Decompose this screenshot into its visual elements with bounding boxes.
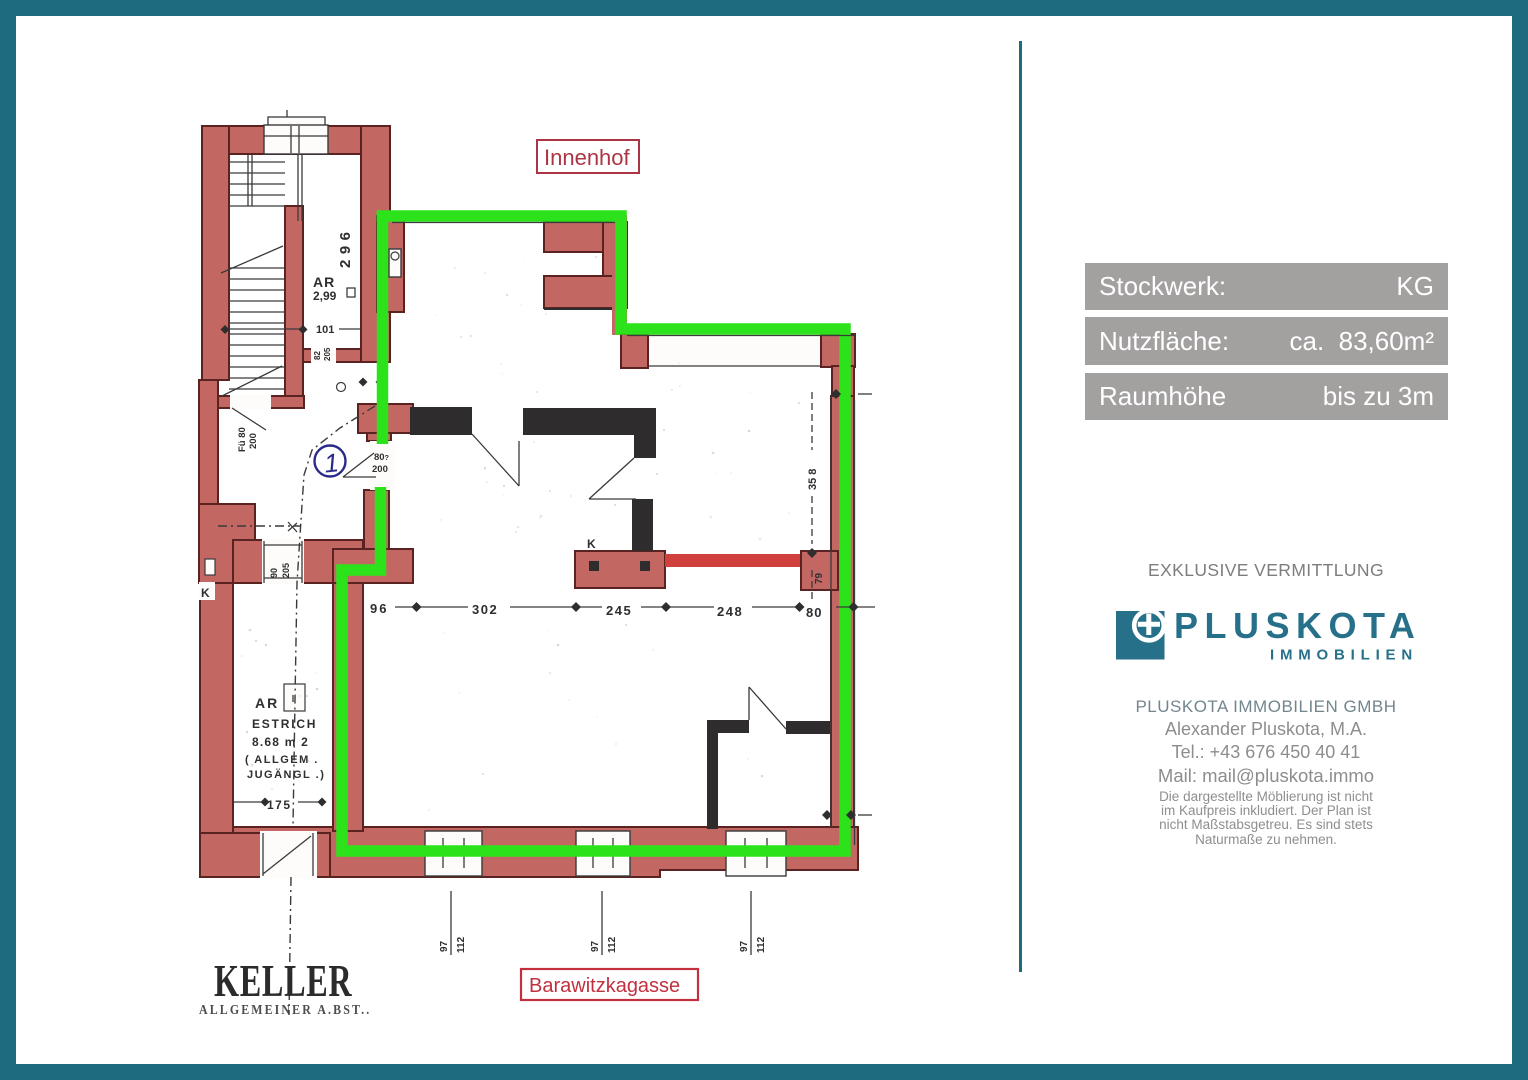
svg-text:35 8: 35 8 [807,469,819,490]
svg-text:ESTRICH: ESTRICH [252,717,317,731]
svg-text:8.68 m 2: 8.68 m 2 [252,735,309,749]
svg-text:Barawitzkagasse: Barawitzkagasse [529,975,680,997]
svg-text:Innenhof: Innenhof [544,145,631,170]
svg-text:JUGÄNGL .): JUGÄNGL .) [247,768,325,781]
svg-text:296: 296 [337,226,354,268]
svg-text:IMMOBILIEN: IMMOBILIEN [1270,647,1418,664]
svg-text:112: 112 [607,936,618,953]
svg-text:Fü 80: Fü 80 [237,427,248,452]
svg-text:205: 205 [281,563,291,578]
svg-text:AR: AR [255,695,279,711]
svg-text:ALLGEMEINER A.BST..: ALLGEMEINER A.BST.. [199,1001,371,1017]
svg-text:245: 245 [606,603,632,618]
svg-text:PLUSKOTA: PLUSKOTA [1174,605,1421,646]
svg-text:K: K [201,586,210,600]
svg-text:205: 205 [323,347,332,361]
svg-text:200: 200 [372,464,388,475]
svg-text:112: 112 [756,936,767,953]
svg-text:K: K [587,537,596,551]
svg-text:96: 96 [370,601,388,616]
svg-text:1: 1 [323,447,341,478]
svg-text:KELLER: KELLER [214,955,353,1006]
svg-text:112: 112 [456,936,467,953]
svg-text:97: 97 [739,940,750,952]
svg-text:2,99: 2,99 [313,289,337,303]
svg-text:175: 175 [267,798,292,812]
svg-text:80: 80 [806,605,822,620]
svg-text:248: 248 [717,604,743,619]
svg-text:97: 97 [439,940,450,952]
svg-text:200: 200 [248,433,259,449]
svg-text:90: 90 [269,568,279,578]
svg-text:97: 97 [590,940,601,952]
svg-text:AR: AR [313,274,335,290]
svg-text:302: 302 [472,602,498,617]
svg-text:79: 79 [814,572,825,584]
svg-text:101: 101 [316,324,334,336]
svg-text:82: 82 [313,351,322,360]
